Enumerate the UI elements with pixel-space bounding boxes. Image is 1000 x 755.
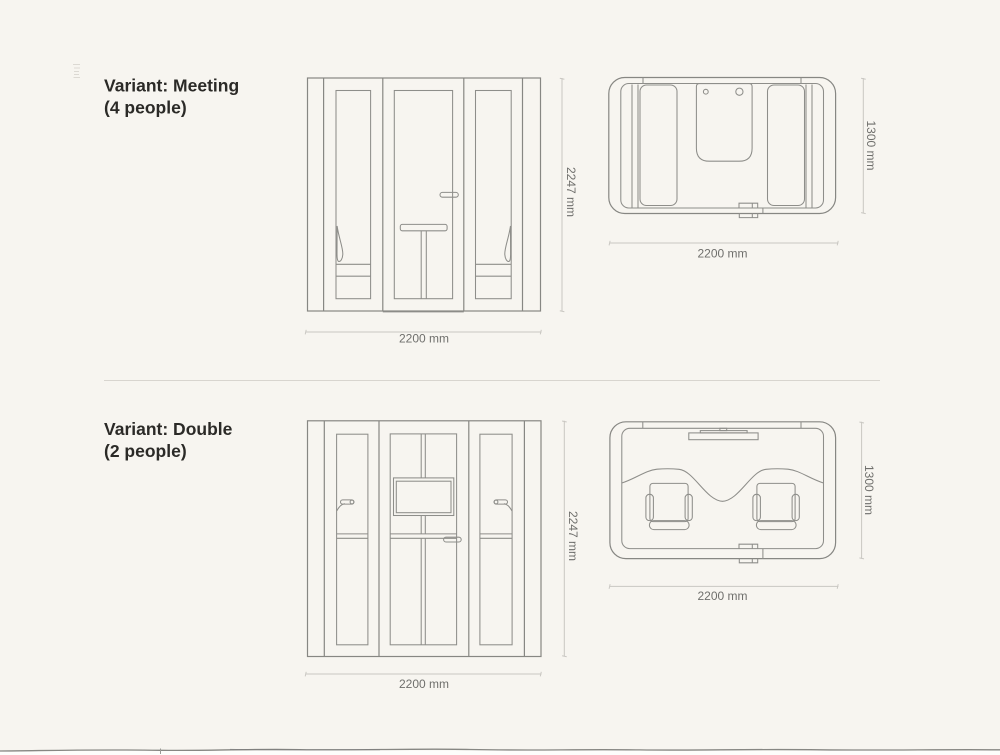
svg-text:2200 mm: 2200 mm bbox=[697, 247, 747, 261]
svg-text:2247 mm: 2247 mm bbox=[564, 167, 578, 217]
svg-text:2200 mm: 2200 mm bbox=[399, 332, 449, 346]
svg-text:(2 people): (2 people) bbox=[104, 441, 187, 461]
svg-text:Variant: Meeting: Variant: Meeting bbox=[104, 76, 239, 96]
svg-text:2247 mm: 2247 mm bbox=[566, 511, 580, 561]
svg-text:1300 mm: 1300 mm bbox=[862, 465, 876, 515]
svg-text:2200 mm: 2200 mm bbox=[399, 677, 449, 691]
svg-text:(4 people): (4 people) bbox=[104, 98, 187, 118]
svg-text:Variant: Double: Variant: Double bbox=[104, 419, 233, 439]
svg-text:1300 mm: 1300 mm bbox=[864, 120, 878, 170]
svg-text:2200 mm: 2200 mm bbox=[697, 589, 747, 603]
